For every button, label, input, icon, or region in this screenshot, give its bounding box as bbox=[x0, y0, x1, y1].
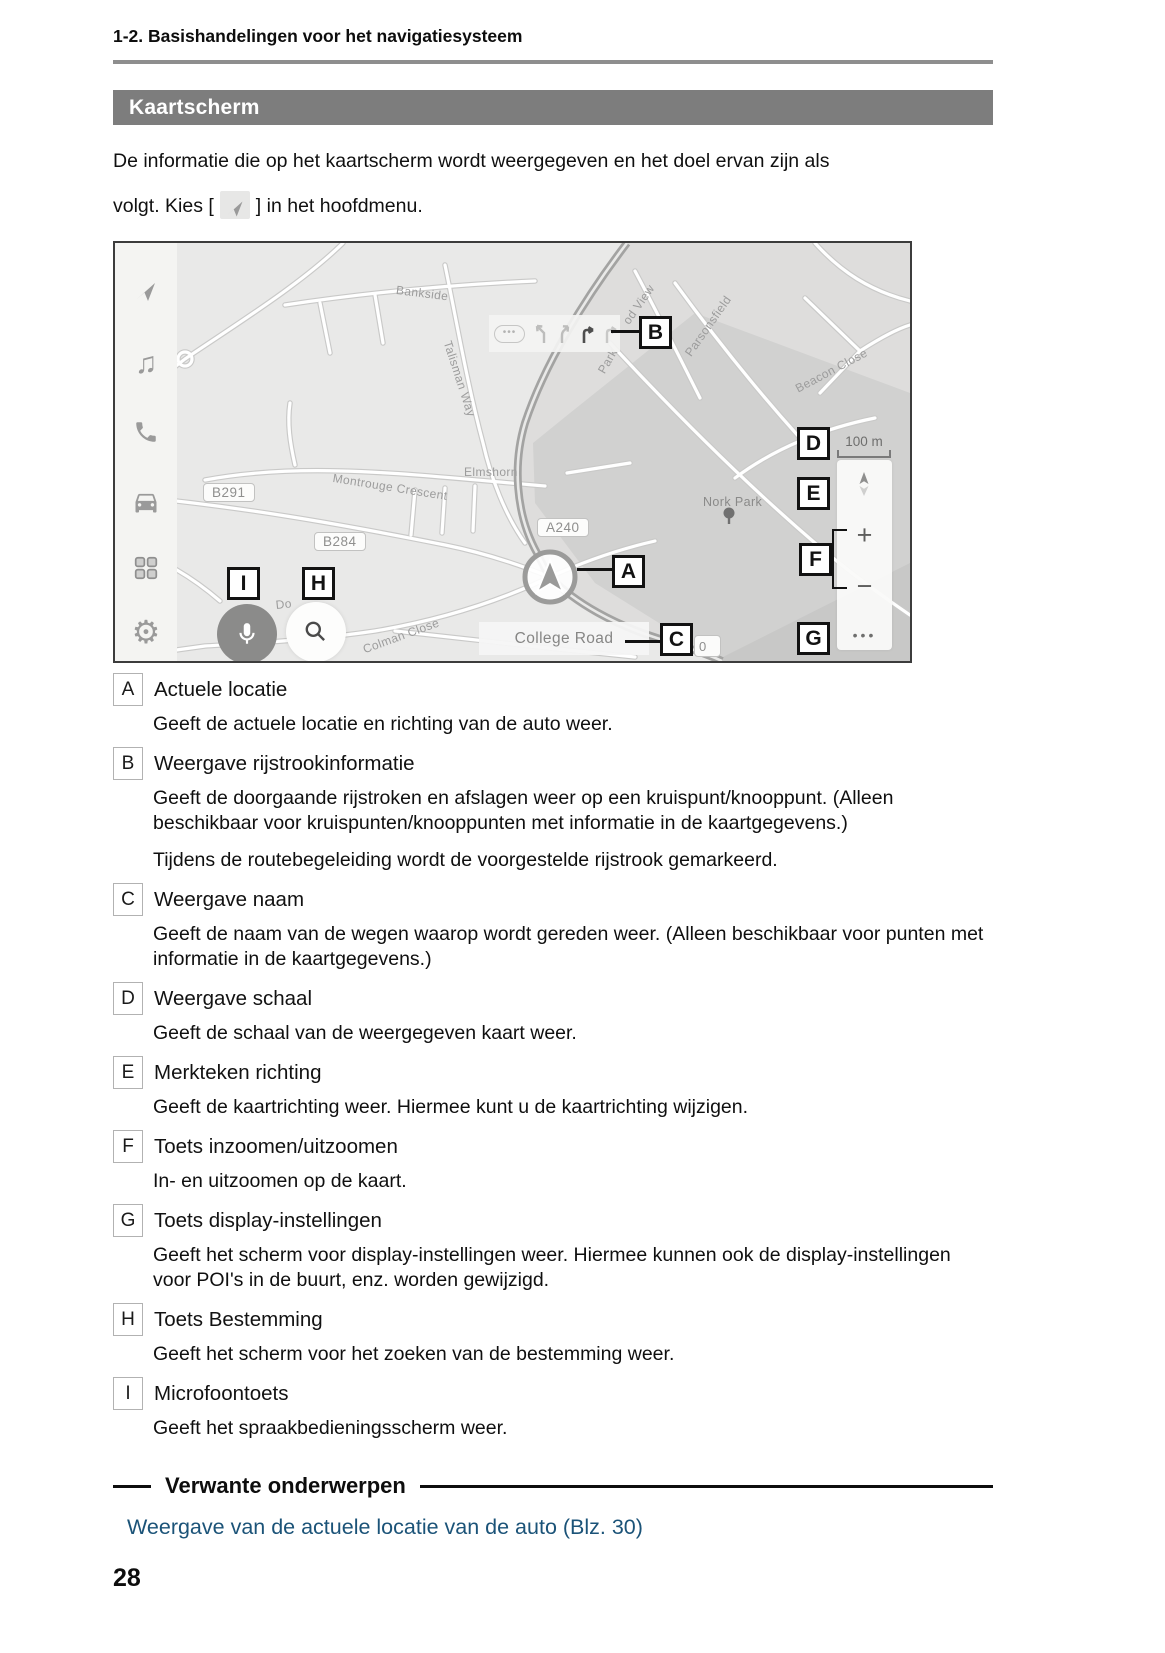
header-rule bbox=[113, 60, 993, 64]
legend-title-c: Weergave naam bbox=[154, 888, 304, 912]
road-name-bar: College Road bbox=[479, 622, 649, 655]
map-zero-badge: 0 bbox=[694, 635, 721, 657]
legend-item-i: IMicrofoontoets Geeft het spraakbedienin… bbox=[113, 1377, 993, 1441]
sidebar-car-icon[interactable] bbox=[129, 487, 163, 517]
map-scale-bracket bbox=[837, 450, 891, 458]
map-screenshot: Bankside Talisman Way Montrouge Crescent… bbox=[113, 241, 912, 663]
callout-h: H bbox=[302, 567, 335, 600]
tree-icon bbox=[721, 507, 737, 525]
related-topics: Verwante onderwerpen Weergave van de act… bbox=[113, 1473, 993, 1540]
related-topics-header: Verwante onderwerpen bbox=[113, 1473, 993, 1499]
legend-letter-g: G bbox=[113, 1204, 143, 1237]
lane-arrows bbox=[531, 322, 620, 346]
legend-letter-a: A bbox=[113, 673, 143, 706]
legend-item-f: FToets inzoomen/uitzoomen In- en uitzoom… bbox=[113, 1130, 993, 1194]
legend-desc-i: Geeft het spraakbedieningsscherm weer. bbox=[153, 1416, 993, 1441]
callout-d: D bbox=[797, 427, 830, 460]
manual-page: 1-2. Basishandelingen voor het navigatie… bbox=[0, 0, 1165, 1593]
sidebar-settings-gear-icon[interactable]: ⚙ bbox=[129, 617, 163, 647]
legend-title-b: Weergave rijstrookinformatie bbox=[154, 752, 415, 776]
sidebar-apps-grid-icon[interactable] bbox=[129, 553, 163, 583]
microphone-icon bbox=[234, 621, 260, 647]
section-banner: Kaartscherm bbox=[113, 90, 993, 125]
lane-dots-pill: ••• bbox=[494, 325, 525, 343]
navigation-arrow-icon bbox=[220, 191, 250, 219]
lane-arrow-fork-left-icon bbox=[531, 322, 551, 346]
map-scale: 100 m bbox=[837, 434, 891, 458]
legend-item-c: CWeergave naam Geeft de naam van de wege… bbox=[113, 883, 993, 972]
legend-desc-e: Geeft de kaartrichting weer. Hiermee kun… bbox=[153, 1095, 993, 1120]
legend-desc-h: Geeft het scherm voor het zoeken van de … bbox=[153, 1342, 993, 1367]
legend-item-h: HToets Bestemming Geeft het scherm voor … bbox=[113, 1303, 993, 1367]
legend-letter-i: I bbox=[113, 1377, 143, 1410]
callout-a-connector bbox=[577, 568, 612, 571]
callout-b: B bbox=[639, 316, 672, 349]
legend-title-i: Microfoontoets bbox=[154, 1382, 288, 1406]
legend-item-a: AActuele locatie Geeft de actuele locati… bbox=[113, 673, 993, 737]
street-label-do-fragment: Do bbox=[275, 596, 293, 612]
legend-item-e: EMerkteken richting Geeft de kaartrichti… bbox=[113, 1056, 993, 1120]
related-left-rule bbox=[113, 1485, 151, 1488]
page-number: 28 bbox=[113, 1564, 993, 1593]
lane-arrow-turn-right-icon bbox=[577, 322, 597, 346]
road-shield-b284: B284 bbox=[314, 532, 366, 551]
search-icon bbox=[303, 619, 329, 645]
legend-title-h: Toets Bestemming bbox=[154, 1308, 323, 1332]
callout-c-connector bbox=[625, 640, 660, 643]
lane-information-bar: ••• bbox=[489, 315, 620, 352]
legend-desc-c: Geeft de naam van de wegen waarop wordt … bbox=[153, 922, 993, 972]
legend-desc-d: Geeft de schaal van de weergegeven kaart… bbox=[153, 1021, 993, 1046]
sidebar-navigation-icon[interactable] bbox=[129, 277, 163, 307]
legend-item-d: DWeergave schaal Geeft de schaal van de … bbox=[113, 982, 993, 1046]
related-right-rule bbox=[420, 1485, 993, 1488]
sidebar-media-icon[interactable]: ♫ bbox=[129, 349, 163, 379]
road-shield-a240: A240 bbox=[537, 518, 589, 537]
legend-letter-c: C bbox=[113, 883, 143, 916]
legend-letter-f: F bbox=[113, 1130, 143, 1163]
legend-desc-b2: Tijdens de routebegeleiding wordt de voo… bbox=[153, 848, 993, 873]
legend-letter-h: H bbox=[113, 1303, 143, 1336]
sidebar-phone-icon[interactable] bbox=[129, 417, 163, 447]
legend-desc-g: Geeft het scherm voor display-instelling… bbox=[153, 1243, 993, 1293]
map-scale-label: 100 m bbox=[837, 434, 891, 449]
intro-line2-before: volgt. Kies [ bbox=[113, 195, 214, 217]
legend-title-f: Toets inzoomen/uitzoomen bbox=[154, 1135, 398, 1159]
callout-a: A bbox=[612, 555, 645, 588]
legend-desc-a: Geeft de actuele locatie en richting van… bbox=[153, 712, 993, 737]
zoom-callout-bracket bbox=[832, 529, 847, 589]
legend-title-g: Toets display-instellingen bbox=[154, 1209, 382, 1233]
intro-text: De informatie die op het kaartscherm wor… bbox=[113, 139, 993, 229]
legend-item-b: BWeergave rijstrookinformatie Geeft de d… bbox=[113, 747, 993, 873]
legend-title-e: Merkteken richting bbox=[154, 1061, 321, 1085]
legend-desc-b1: Geeft de doorgaande rijstroken en afslag… bbox=[153, 786, 993, 836]
callout-c: C bbox=[660, 623, 693, 656]
callout-f: F bbox=[799, 543, 832, 576]
compass-heading-icon[interactable] bbox=[857, 471, 871, 497]
callout-i: I bbox=[227, 567, 260, 600]
related-topics-title: Verwante onderwerpen bbox=[165, 1473, 406, 1499]
related-topic-link[interactable]: Weergave van de actuele locatie van de a… bbox=[127, 1515, 643, 1540]
legend-item-g: GToets display-instellingen Geeft het sc… bbox=[113, 1204, 993, 1293]
destination-search-button[interactable] bbox=[286, 602, 346, 662]
intro-line1: De informatie die op het kaartscherm wor… bbox=[113, 150, 829, 172]
chapter-breadcrumb: 1-2. Basishandelingen voor het navigatie… bbox=[113, 26, 993, 47]
display-settings-button[interactable]: ••• bbox=[837, 627, 892, 643]
callout-e: E bbox=[797, 477, 830, 510]
lane-arrow-turn-right-faded-icon bbox=[600, 322, 620, 346]
callout-g: G bbox=[797, 622, 830, 655]
legend-letter-e: E bbox=[113, 1056, 143, 1089]
legend-title-a: Actuele locatie bbox=[154, 678, 287, 702]
legend-letter-b: B bbox=[113, 747, 143, 780]
microphone-button[interactable] bbox=[217, 604, 277, 663]
legend-letter-d: D bbox=[113, 982, 143, 1015]
lane-arrow-slight-right-icon bbox=[554, 322, 574, 346]
street-label-elmshorn: Elmshorn bbox=[464, 465, 518, 479]
callout-b-connector bbox=[611, 330, 639, 333]
legend-desc-f: In- en uitzoomen op de kaart. bbox=[153, 1169, 993, 1194]
legend-title-d: Weergave schaal bbox=[154, 987, 312, 1011]
road-shield-b291: B291 bbox=[203, 483, 255, 502]
intro-line2-after: ] in het hoofdmenu. bbox=[256, 195, 423, 217]
main-menu-sidebar: ♫ ⚙ bbox=[115, 243, 177, 661]
current-location-marker bbox=[520, 547, 580, 607]
legend-list: AActuele locatie Geeft de actuele locati… bbox=[113, 673, 993, 1441]
